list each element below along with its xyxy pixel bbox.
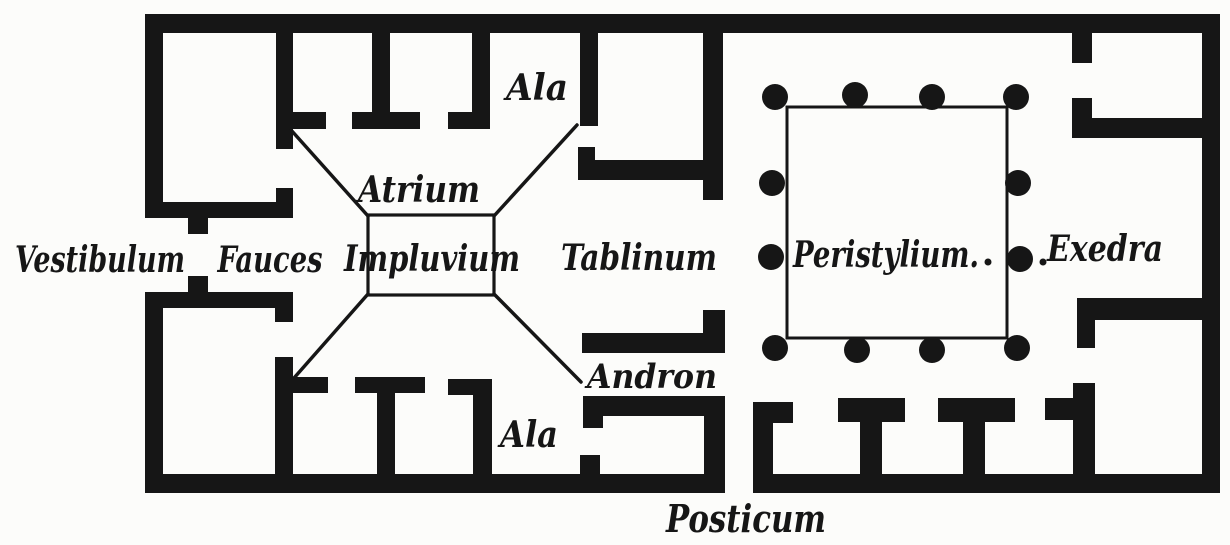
wall-segment bbox=[145, 292, 293, 308]
wall-segment bbox=[355, 377, 425, 393]
peristyle-column bbox=[762, 335, 788, 361]
wall-segment bbox=[1072, 28, 1092, 63]
wall-segment bbox=[145, 202, 293, 218]
peristyle-column bbox=[919, 337, 945, 363]
wall-segment bbox=[938, 398, 1015, 422]
wall-segment bbox=[145, 14, 163, 218]
floor-plan-canvas: Vestibulum Fauces Atrium Impluvium Ala T… bbox=[0, 0, 1230, 545]
wall-segment bbox=[372, 30, 390, 114]
label-fauces: Fauces bbox=[217, 239, 323, 281]
leader-dot bbox=[1040, 259, 1047, 266]
label-tablinum: Tablinum bbox=[561, 237, 717, 279]
wall-segment bbox=[448, 112, 490, 129]
wall-segment bbox=[773, 402, 793, 423]
wall-segment bbox=[473, 395, 492, 493]
wall-segment bbox=[578, 160, 706, 180]
wall-segment bbox=[145, 474, 725, 493]
wall-segment bbox=[292, 112, 326, 129]
label-andron: Andron bbox=[584, 357, 717, 397]
peristyle-column bbox=[1007, 246, 1033, 272]
wall-segment bbox=[753, 474, 1220, 493]
wall-segment bbox=[448, 379, 492, 395]
wall-segment bbox=[1073, 383, 1095, 493]
wall-segment bbox=[703, 310, 725, 353]
wall-segment bbox=[188, 276, 208, 292]
wall-segment bbox=[275, 308, 293, 322]
wall-segment bbox=[703, 30, 723, 200]
wall-segment bbox=[838, 398, 905, 422]
wall-segment bbox=[753, 402, 773, 493]
wall-segment bbox=[292, 377, 328, 393]
wall-segment bbox=[583, 396, 725, 416]
wall-segment bbox=[580, 455, 600, 475]
wall-segment bbox=[1202, 14, 1220, 493]
wall-segment bbox=[145, 14, 1220, 33]
label-impluvium: Impluvium bbox=[343, 238, 520, 280]
label-posticum: Posticum bbox=[665, 496, 826, 541]
wall-segment bbox=[275, 357, 293, 493]
floor-plan-figure: Vestibulum Fauces Atrium Impluvium Ala T… bbox=[0, 0, 1230, 545]
peristyle-column bbox=[1003, 84, 1029, 110]
wall-segment bbox=[188, 218, 208, 234]
wall-segment bbox=[352, 112, 420, 129]
wall-segment bbox=[860, 422, 882, 493]
wall-segment bbox=[145, 292, 163, 493]
label-ala-top: Ala bbox=[503, 67, 568, 109]
wall-segment bbox=[377, 393, 395, 493]
wall-segment bbox=[472, 30, 490, 114]
peristyle-column bbox=[758, 244, 784, 270]
wall-segment bbox=[276, 188, 293, 218]
wall-segment bbox=[1077, 298, 1202, 320]
peristyle-column bbox=[844, 337, 870, 363]
label-vestibulum: Vestibulum bbox=[15, 239, 185, 281]
label-ala-bottom: Ala bbox=[497, 414, 558, 456]
peristyle-column bbox=[1004, 335, 1030, 361]
wall-segment bbox=[704, 396, 725, 493]
peristyle-column bbox=[759, 170, 785, 196]
wall-segment bbox=[583, 396, 603, 428]
wall-segment bbox=[1045, 398, 1077, 420]
label-peristylium: Peristylium. bbox=[792, 234, 979, 276]
leader-dot bbox=[985, 259, 992, 266]
label-exedra: Exedra bbox=[1046, 228, 1163, 270]
peristyle-column bbox=[919, 84, 945, 110]
peristyle-column bbox=[1005, 170, 1031, 196]
label-atrium: Atrium bbox=[355, 169, 480, 211]
peristyle-column bbox=[762, 84, 788, 110]
wall-segment bbox=[580, 30, 598, 126]
peristyle-column bbox=[842, 82, 868, 108]
wall-segment bbox=[963, 422, 985, 493]
wall-segment bbox=[1077, 320, 1095, 348]
wall-segment bbox=[1072, 118, 1202, 138]
